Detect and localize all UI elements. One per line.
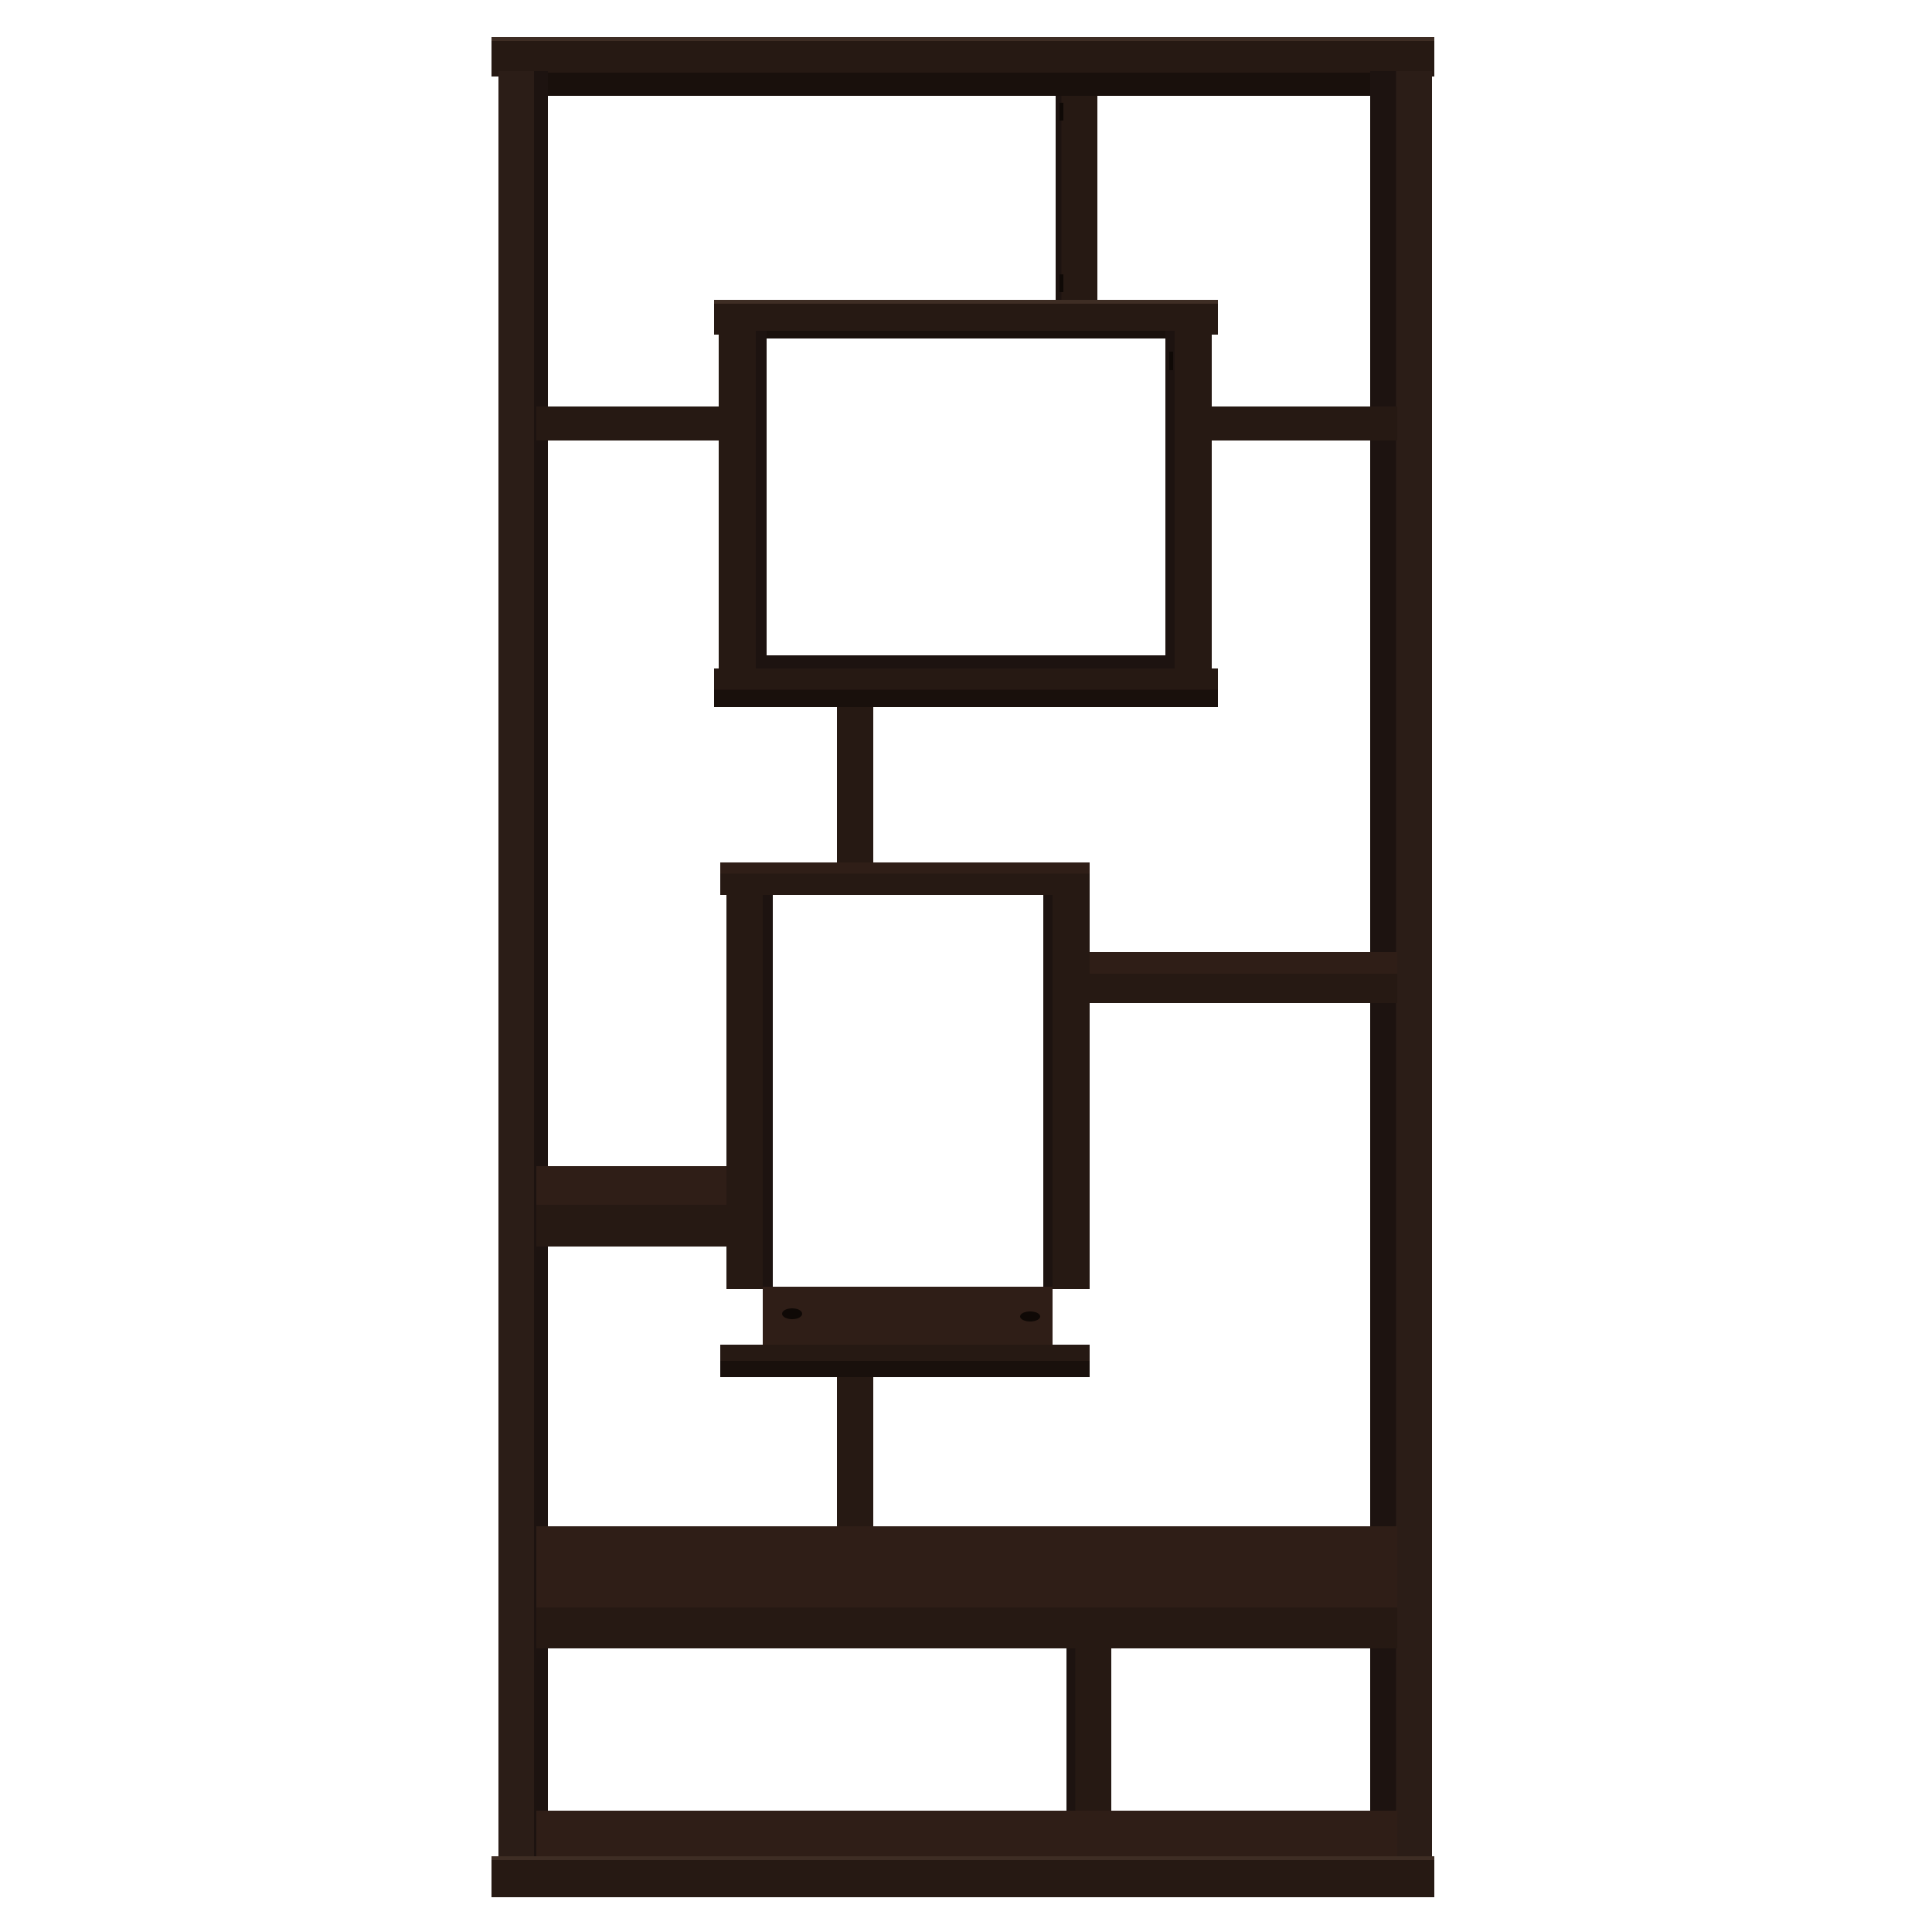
lower-box-floor (763, 1287, 1053, 1347)
lower-box-top-cap (720, 862, 1090, 895)
lower-box-right-wall-inner-face (1043, 895, 1053, 1289)
bookcase-illustration (0, 0, 1932, 1932)
right-shelf-top-surface (1090, 952, 1397, 974)
upper-box-right-wall (1175, 331, 1212, 668)
lower-box-left-wall (726, 895, 763, 1289)
left-shelf-top-surface (536, 1166, 726, 1205)
base-plinth (492, 1856, 1434, 1897)
lower-box-bottom (720, 1345, 1090, 1377)
upper-box-bottom-inner-edge (767, 655, 1165, 668)
upper-box-wall-pin-hole (1169, 352, 1173, 370)
floor-screw-hole-left (782, 1308, 802, 1319)
wide-shelf-top-surface (536, 1526, 1397, 1607)
wide-shelf-front (536, 1607, 1397, 1648)
upper-box-bottom (714, 668, 1218, 707)
upper-box-right-wall-inner-face (1165, 331, 1175, 668)
left-shelf-front (536, 1205, 726, 1247)
mid-shelf-left (536, 406, 720, 440)
top-panel-underside (541, 73, 1383, 96)
divider-pin-hole-lower (1060, 274, 1063, 292)
upper-box-cap-inner-edge (767, 331, 1165, 338)
divider-pin-hole-upper (1060, 103, 1063, 121)
mid-shelf-right (1212, 406, 1397, 440)
lower-box-left-wall-inner-face (763, 895, 773, 1289)
upper-box-top-cap (714, 300, 1218, 335)
upper-box-left-wall-inner-face (756, 331, 767, 668)
top-divider (1056, 96, 1097, 300)
top-cap (492, 37, 1434, 77)
floor-screw-hole-right (1020, 1311, 1040, 1321)
upper-stem-divider (837, 707, 873, 862)
upper-box-left-wall (719, 331, 756, 668)
lower-box-right-wall (1053, 895, 1090, 1289)
product-photo (0, 0, 1932, 1932)
right-shelf-front (1090, 974, 1397, 1003)
bottom-floor-surface (536, 1811, 1397, 1858)
